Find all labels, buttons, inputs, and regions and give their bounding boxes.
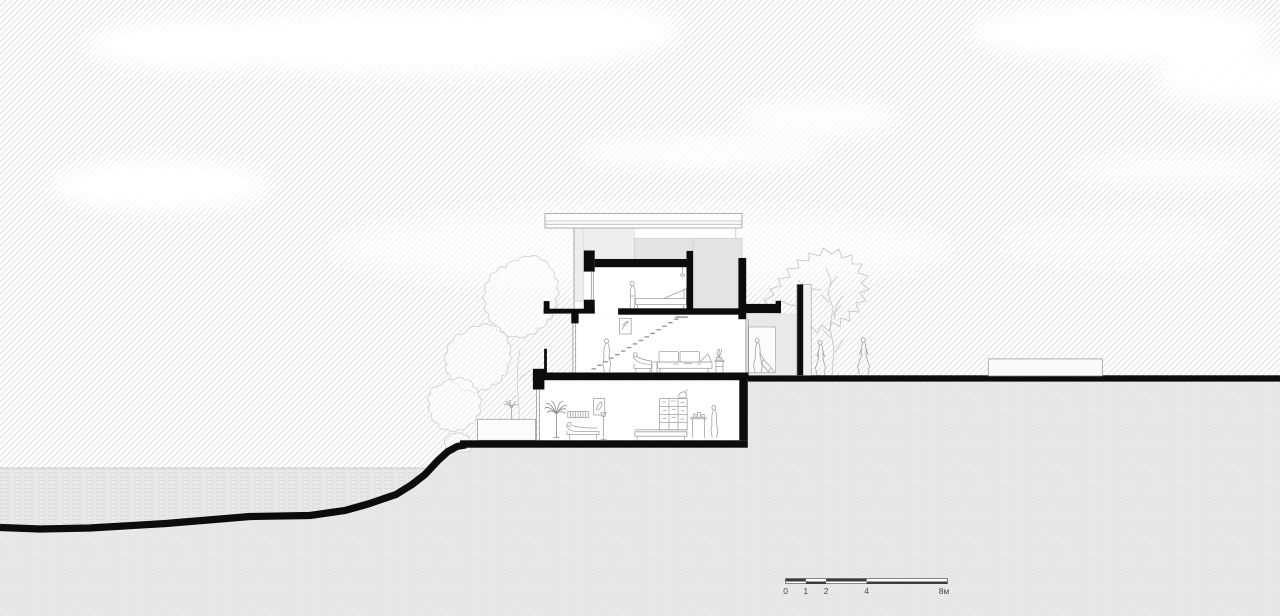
svg-text:4: 4 (864, 586, 869, 596)
svg-text:1: 1 (803, 586, 808, 596)
svg-text:0: 0 (783, 586, 788, 596)
svg-text:2: 2 (824, 586, 829, 596)
svg-text:8м: 8м (939, 586, 950, 596)
